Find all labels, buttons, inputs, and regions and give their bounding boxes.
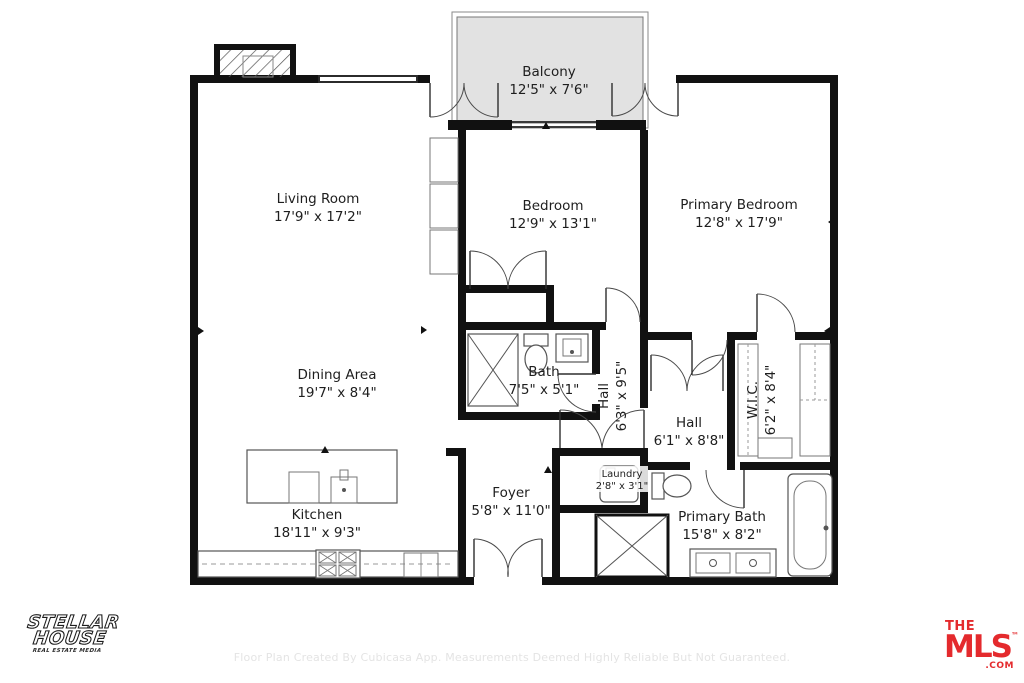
stellar-house-logo: STELLAR HOUSE REAL ESTATE MEDIA [23, 615, 118, 653]
kitchen-counter [198, 550, 458, 578]
label-hall1-name: Hall [596, 383, 612, 409]
label-primary-bath-dims: 15'8" x 8'2" [682, 527, 761, 543]
label-wic-name: W.I.C. [745, 381, 761, 419]
stove [316, 550, 360, 578]
label-bath-dims: 7'5" x 5'1" [509, 382, 580, 398]
stellar-house-line2: HOUSE [32, 631, 116, 647]
label-hall2-dims: 6'1" x 8'8" [654, 433, 725, 449]
floor-plan-disclaimer: Floor Plan Created By Cubicasa App. Meas… [0, 651, 1024, 664]
label-foyer-dims: 5'8" x 11'0" [471, 503, 550, 519]
label-foyer-name: Foyer [492, 485, 530, 501]
label-hall2-name: Hall [676, 415, 702, 431]
shelf [430, 138, 458, 182]
label-hall1-dims: 6'3" x 9'5" [614, 361, 630, 432]
label-laundry-name: Laundry [602, 469, 643, 480]
bath-sink [556, 334, 588, 362]
label-kitchen-name: Kitchen [292, 507, 343, 523]
hatched-shaft [217, 47, 293, 80]
label-dining-dims: 19'7" x 8'4" [297, 385, 376, 401]
floor-plan: Balcony 12'5" x 7'6" Living Room 17'9" x… [0, 0, 1024, 683]
label-kitchen-dims: 18'11" x 9'3" [273, 525, 361, 541]
label-primary-bedroom-dims: 12'8" x 17'9" [695, 215, 783, 231]
kitchen-island [247, 450, 397, 503]
bathtub [788, 474, 832, 576]
label-bedroom-dims: 12'9" x 13'1" [509, 216, 597, 232]
label-bedroom-name: Bedroom [522, 198, 583, 214]
label-primary-bath-name: Primary Bath [678, 509, 766, 525]
label-living-name: Living Room [277, 191, 360, 207]
label-living-dims: 17'9" x 17'2" [274, 209, 362, 225]
label-laundry-dims: 2'8" x 3'1" [596, 481, 648, 492]
dimension-ticks [198, 122, 834, 473]
sliding-door [512, 121, 596, 123]
double-vanity [690, 549, 776, 577]
label-primary-bedroom-name: Primary Bedroom [680, 197, 798, 213]
primary-shower [596, 515, 668, 577]
mls-trademark: ™ [1011, 631, 1019, 640]
label-dining-name: Dining Area [298, 367, 377, 383]
primary-toilet [652, 473, 691, 499]
label-wic-dims: 6'2" x 8'4" [763, 365, 779, 436]
label-balcony-name: Balcony [522, 64, 576, 80]
label-bath-name: Bath [528, 364, 559, 380]
label-balcony-dims: 12'5" x 7'6" [509, 82, 588, 98]
window [318, 75, 418, 83]
